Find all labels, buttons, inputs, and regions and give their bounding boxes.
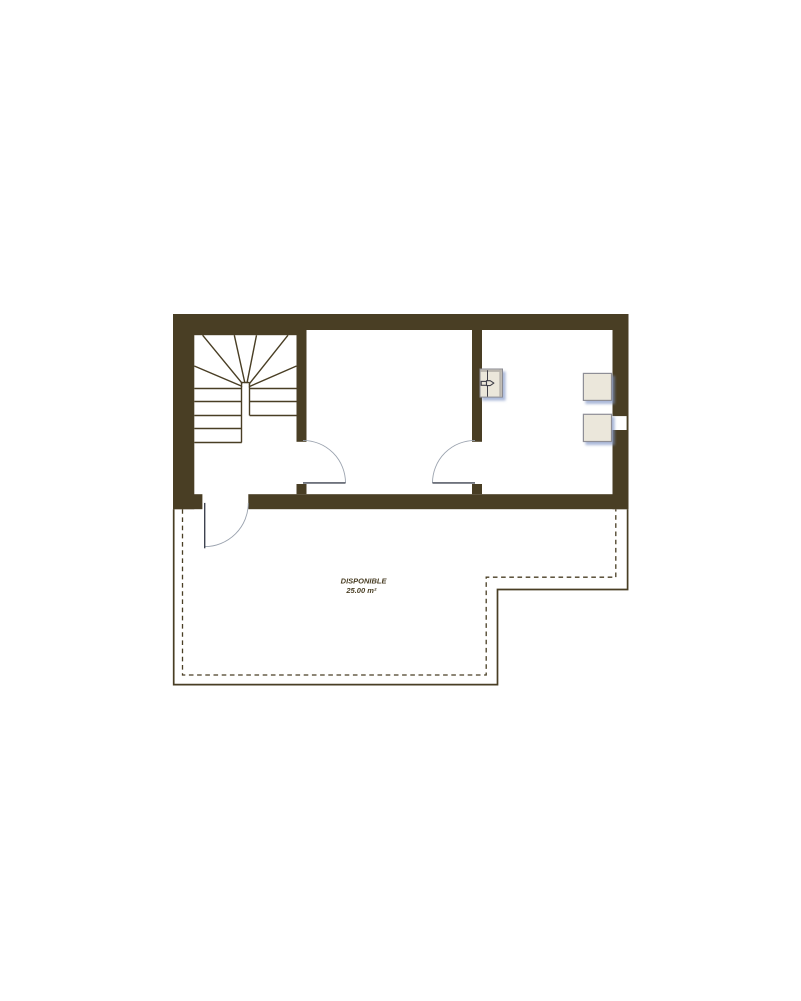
svg-text:25.00 m²: 25.00 m² [345,586,377,595]
svg-text:DISPONIBLE: DISPONIBLE [341,576,388,585]
